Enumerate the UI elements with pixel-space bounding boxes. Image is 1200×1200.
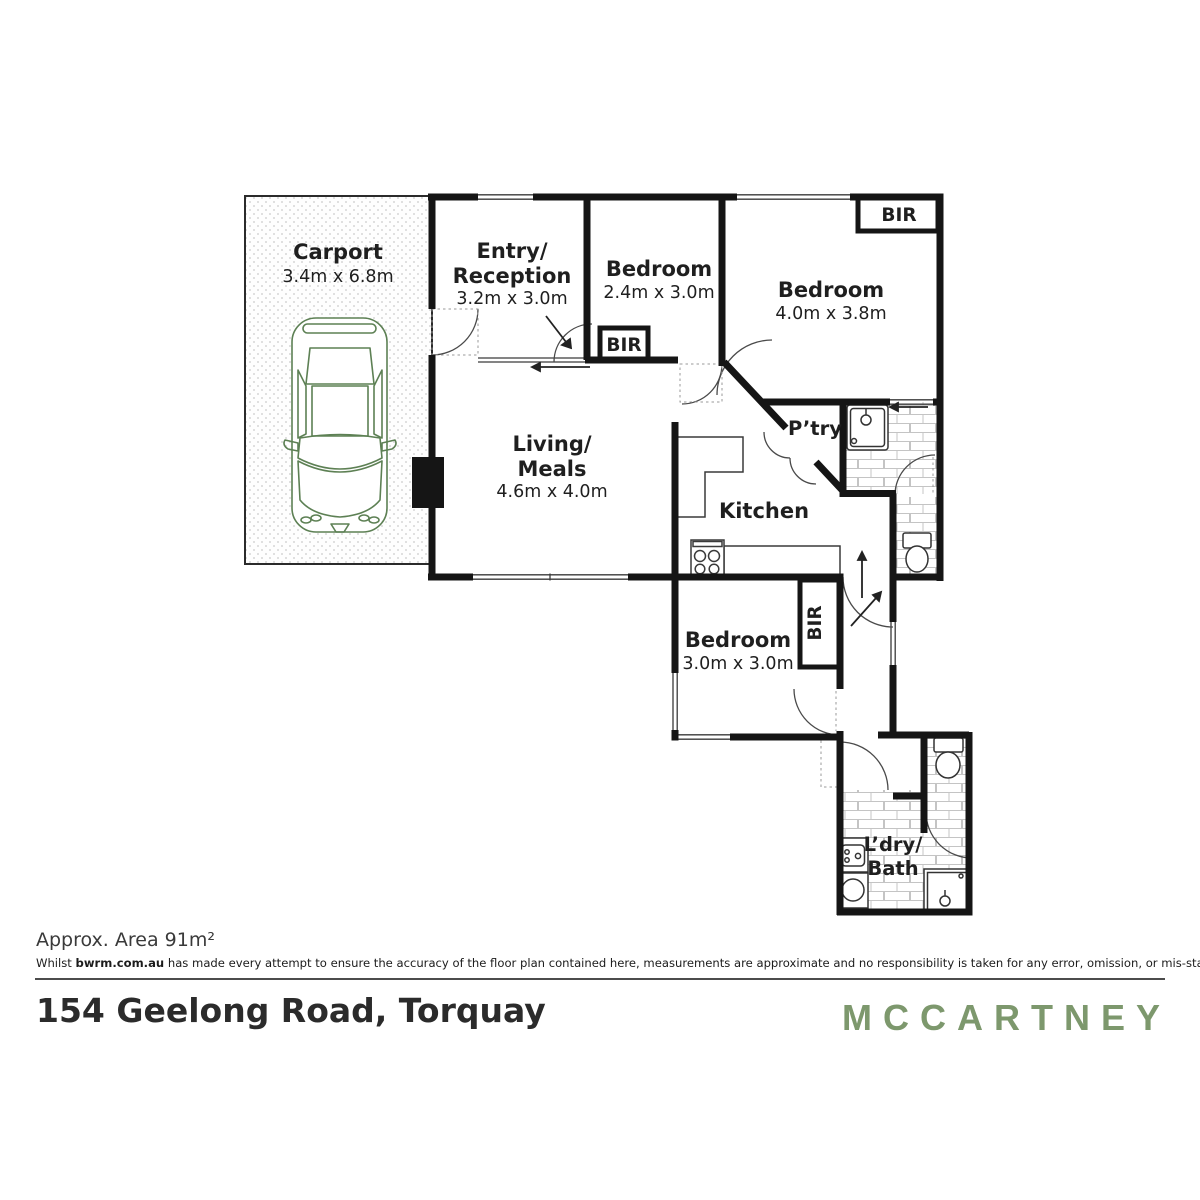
room-label-laundry-1: L’dry/ — [864, 833, 924, 856]
shower-icon — [924, 869, 970, 914]
approx-area-text: Approx. Area 91m² — [36, 929, 215, 951]
room-label-kitchen: Kitchen — [719, 499, 809, 523]
toilet-icon — [934, 738, 963, 778]
room-label-entry-2: Reception — [453, 264, 572, 288]
room-dims-carport: 3.4m x 6.8m — [282, 267, 393, 287]
bir-label-entry: BIR — [606, 335, 641, 356]
room-label-bedroom-1: Bedroom — [606, 257, 712, 281]
toilet-icon — [903, 533, 931, 572]
car-icon — [284, 318, 396, 532]
room-label-living-2: Meals — [517, 457, 586, 481]
room-label-entry-1: Entry/ — [476, 239, 547, 263]
room-label-carport: Carport — [293, 240, 383, 264]
room-dims-entry: 3.2m x 3.0m — [456, 289, 567, 309]
floorplan-drawing: Carport 3.4m x 6.8m Entry/ Reception 3.2… — [0, 0, 1200, 930]
floorplan-page: Carport 3.4m x 6.8m Entry/ Reception 3.2… — [0, 0, 1200, 1200]
bir-label-bedroom-2: BIR — [881, 205, 916, 226]
disclaimer-site: bwrm.com.au — [76, 956, 165, 970]
room-label-bedroom-2: Bedroom — [778, 278, 884, 302]
room-label-living-1: Living/ — [512, 432, 591, 456]
kitchen-counter — [724, 546, 840, 576]
agency-logo: MCCARTNEY — [842, 997, 1171, 1039]
stove-icon — [691, 540, 724, 577]
disclaimer-rest: has made every attempt to ensure the acc… — [164, 956, 1200, 970]
disclaimer-text: Whilst bwrm.com.au has made every attemp… — [36, 956, 1166, 970]
fireplace-block — [412, 457, 444, 508]
shower-tray-icon — [847, 405, 888, 450]
room-dims-bedroom-1: 2.4m x 3.0m — [603, 283, 714, 303]
room-label-bedroom-3: Bedroom — [685, 628, 791, 652]
disclaimer-prefix: Whilst — [36, 956, 76, 970]
property-address: 154 Geelong Road, Torquay — [36, 991, 546, 1030]
room-dims-living: 4.6m x 4.0m — [496, 482, 607, 502]
room-dims-bedroom-2: 4.0m x 3.8m — [775, 304, 886, 324]
bir-label-bedroom-3: BIR — [805, 605, 826, 640]
room-label-laundry-2: Bath — [867, 857, 918, 880]
room-dims-bedroom-3: 3.0m x 3.0m — [682, 654, 793, 674]
door-leaf-dashed — [432, 309, 933, 787]
footer-divider — [35, 978, 1165, 980]
room-label-pantry: P’try — [788, 417, 842, 440]
